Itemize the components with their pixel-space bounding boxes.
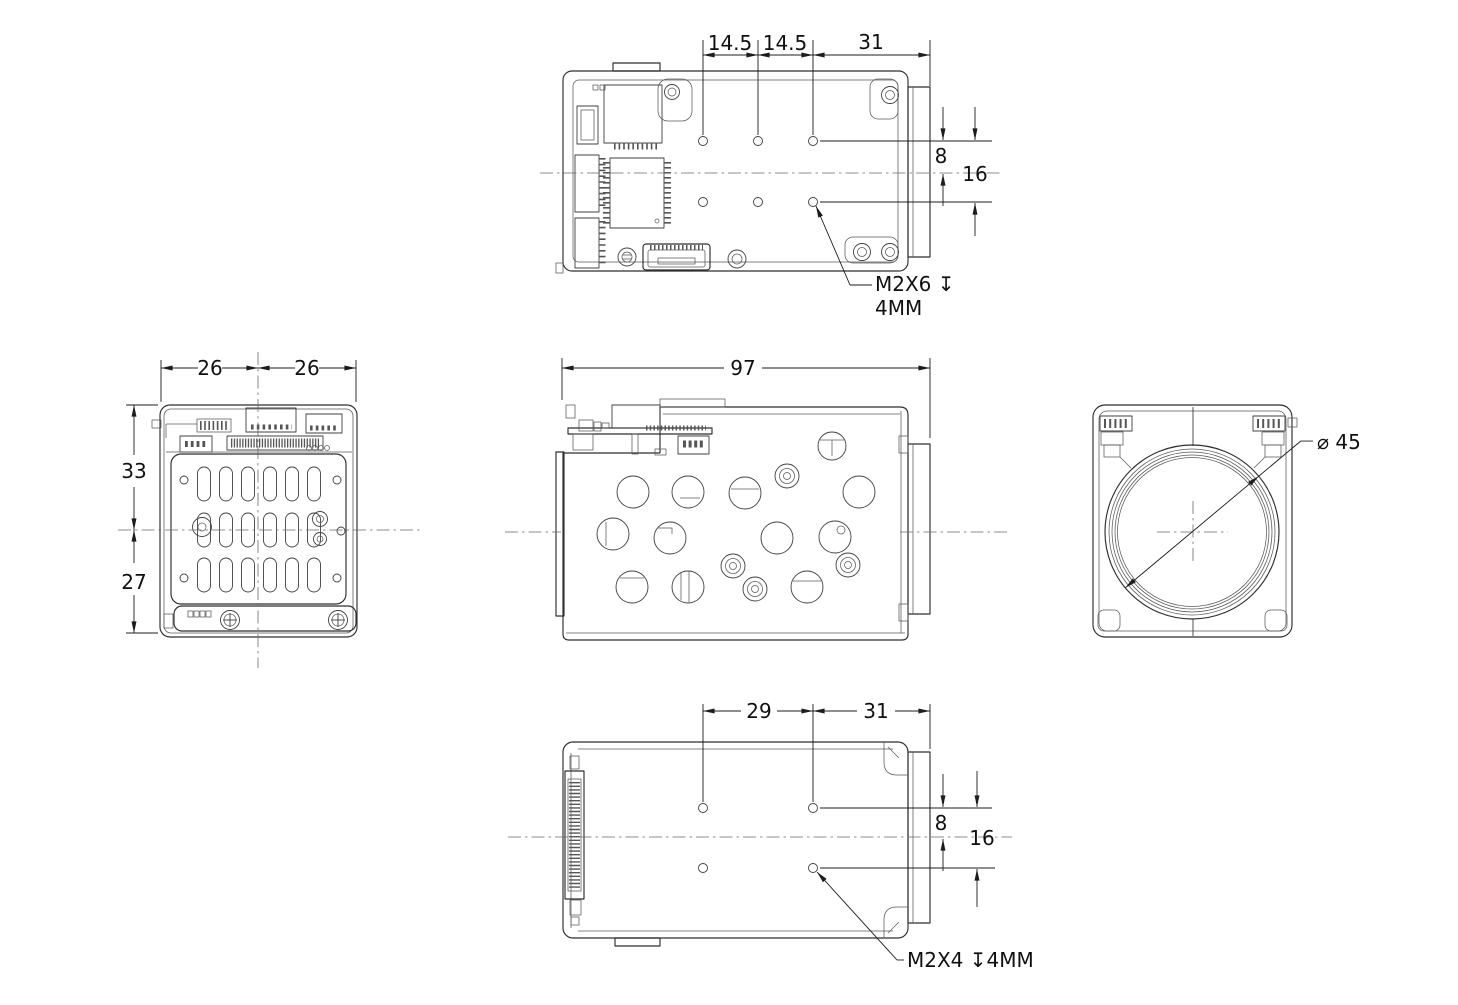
drawing-page: 14.5 14.5 31 8 16 M2X6 ↧ 4MM [0, 0, 1458, 1005]
rear-view-bottom-plate [174, 606, 356, 631]
dim-label-rear-half-width-b: 26 [294, 356, 319, 380]
dim-label-bottom-hole-to-center: 8 [935, 811, 948, 835]
engineering-drawing-canvas: 14.5 14.5 31 8 16 M2X6 ↧ 4MM [0, 0, 1458, 1005]
rear-view-connectors [166, 408, 352, 452]
dim-label-bottom-hole-span: 16 [969, 826, 994, 850]
bottom-view-mounting-holes [699, 804, 818, 873]
rear-view-vent-panel [171, 454, 346, 604]
dim-label-rear-height-upper: 33 [121, 459, 146, 483]
bottom-view-dimensions: 29 31 8 16 [703, 699, 995, 907]
thread-note-bottom: M2X4 ↧4MM [907, 948, 1034, 972]
side-view-outline [556, 399, 930, 640]
side-view: 97 [505, 356, 1010, 640]
dim-label-side-overall-length: 97 [730, 356, 755, 380]
dim-label-rear-half-width-a: 26 [197, 356, 222, 380]
dim-label-front-lens-diameter: ⌀ 45 [1317, 430, 1361, 454]
side-view-dimensions: 97 [562, 356, 930, 438]
top-view-dimensions: 14.5 14.5 31 8 16 [703, 30, 992, 236]
dim-label-top-edge-to-lens: 31 [858, 30, 883, 54]
thread-note-top-line2: 4MM [875, 296, 922, 320]
dim-label-top-hole-span: 16 [962, 162, 987, 186]
front-view-diameter-dimension: ⌀ 45 [1125, 430, 1360, 588]
dim-label-bottom-edge-to-lens: 31 [863, 699, 888, 723]
dim-label-top-hole-to-center: 8 [935, 144, 948, 168]
top-view-pcb-components [575, 85, 710, 270]
side-view-screw-bosses [721, 464, 860, 601]
dim-label-bottom-hole-pitch: 29 [746, 699, 771, 723]
bottom-view-outline [563, 742, 930, 946]
dim-label-top-pitch-a: 14.5 [708, 31, 753, 55]
bottom-view-edge-connector [565, 756, 584, 925]
dim-label-top-pitch-b: 14.5 [763, 31, 808, 55]
side-view-pcb-profile [566, 405, 712, 455]
front-view-corner-details [1098, 416, 1297, 631]
front-view: ⌀ 45 [1093, 405, 1361, 637]
top-view-mounting-holes [699, 137, 818, 207]
thread-note-top-line1: M2X6 ↧ [875, 272, 955, 296]
bottom-view: 29 31 8 16 M2X4 ↧4MM [508, 699, 1034, 972]
rear-view: 26 26 33 27 [118, 352, 420, 668]
top-view: 14.5 14.5 31 8 16 M2X6 ↧ 4MM [540, 30, 1000, 320]
dim-label-rear-height-lower: 27 [121, 570, 146, 594]
bottom-view-thread-note: M2X4 ↧4MM [817, 872, 1034, 972]
top-view-outline [556, 63, 930, 273]
